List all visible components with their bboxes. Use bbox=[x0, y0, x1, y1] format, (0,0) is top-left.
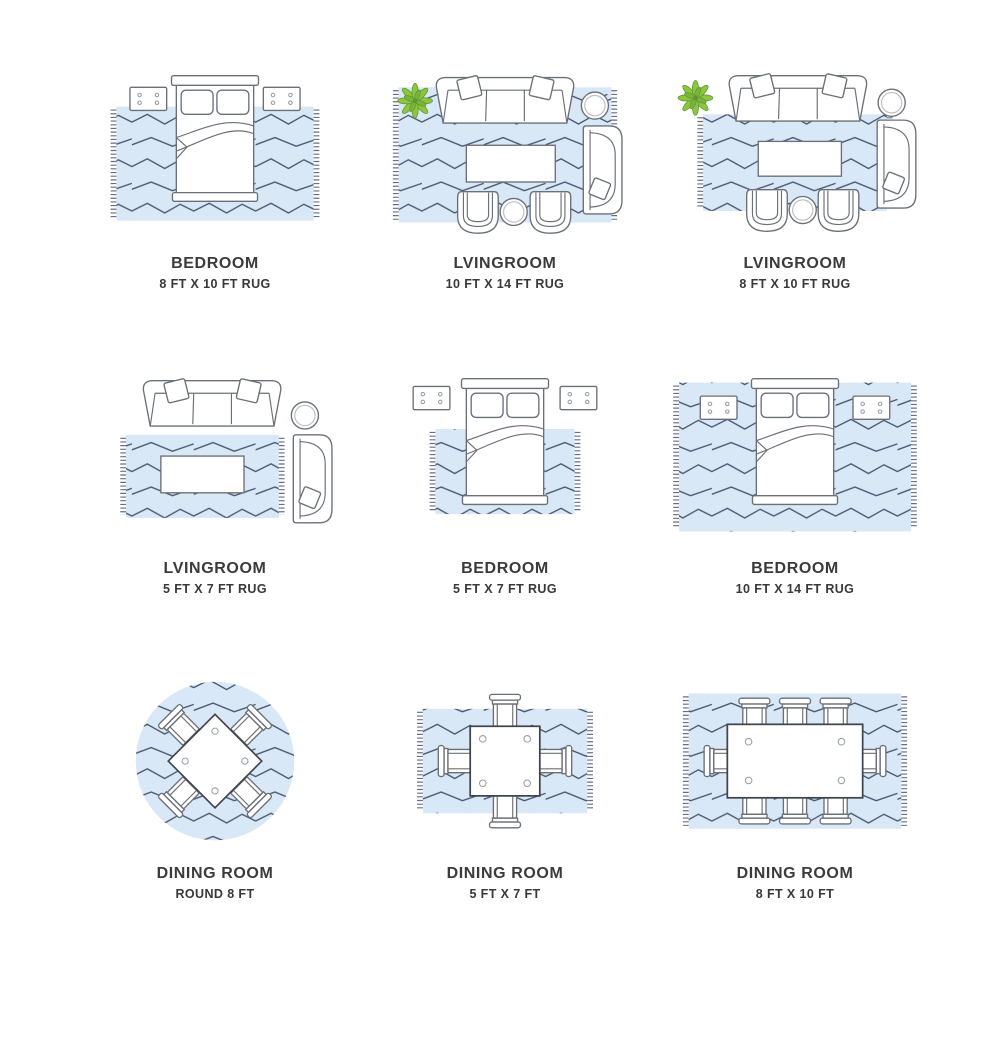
dining-chair-icon bbox=[540, 746, 572, 777]
room-name: LVINGROOM bbox=[163, 559, 267, 579]
armchair-icon bbox=[747, 190, 788, 232]
armchair-icon bbox=[458, 192, 499, 234]
rug-caption: BEDROOM 10 FT X 14 FT RUG bbox=[736, 559, 855, 597]
rug-caption: BEDROOM 5 FT X 7 FT RUG bbox=[453, 559, 557, 597]
nightstand-icon bbox=[853, 396, 890, 419]
scene-dining-5x7 bbox=[360, 652, 650, 856]
rug-size: 8 FT X 10 FT RUG bbox=[159, 276, 270, 292]
coffee-table-icon bbox=[466, 145, 555, 182]
round-table-icon bbox=[789, 197, 816, 224]
side-table-icon bbox=[878, 89, 905, 116]
rug-guide-cell-livingroom-8x10: LVINGROOM 8 FT X 10 FT RUG bbox=[650, 42, 940, 347]
dining-table-icon bbox=[727, 724, 862, 797]
rug-caption: DINING ROOM 8 FT X 10 FT bbox=[737, 864, 854, 902]
rug-size-guide-grid: BEDROOM 8 FT X 10 FT RUG LVINGROOM bbox=[70, 42, 1000, 957]
plant-icon bbox=[398, 83, 433, 118]
scene-bedroom-5x7 bbox=[360, 347, 650, 551]
rug-guide-cell-livingroom-10x14: LVINGROOM 10 FT X 14 FT RUG bbox=[360, 42, 650, 347]
rug-caption: DINING ROOM 5 FT X 7 FT bbox=[447, 864, 564, 902]
armchair-icon bbox=[818, 190, 859, 232]
rug-size: 10 FT X 14 FT RUG bbox=[446, 276, 565, 292]
rug-size: 10 FT X 14 FT RUG bbox=[736, 581, 855, 597]
scene-bedroom-10x14 bbox=[650, 347, 940, 551]
dining-table-icon bbox=[470, 726, 540, 796]
nightstand-icon bbox=[263, 87, 300, 110]
rug-guide-cell-dining-8x10: DINING ROOM 8 FT X 10 FT bbox=[650, 652, 940, 957]
rug-guide-cell-bedroom-8x10: BEDROOM 8 FT X 10 FT RUG bbox=[70, 42, 360, 347]
nightstand-icon bbox=[130, 87, 167, 110]
chaise-icon bbox=[877, 120, 916, 208]
bed-icon bbox=[172, 76, 259, 202]
dining-chair-icon bbox=[490, 694, 521, 726]
dining-chair-icon bbox=[438, 746, 470, 777]
rug-size: 8 FT X 10 FT bbox=[737, 886, 854, 902]
side-table-icon bbox=[581, 92, 608, 119]
plant-icon bbox=[678, 81, 713, 116]
room-name: DINING ROOM bbox=[737, 864, 854, 884]
scene-livingroom-8x10 bbox=[650, 42, 940, 246]
bed-icon bbox=[462, 379, 549, 505]
rug-guide-cell-livingroom-5x7: LVINGROOM 5 FT X 7 FT RUG bbox=[70, 347, 360, 652]
chaise-icon bbox=[293, 435, 332, 523]
nightstand-icon bbox=[700, 396, 737, 419]
rug-caption: LVINGROOM 8 FT X 10 FT RUG bbox=[739, 254, 850, 292]
sofa-icon bbox=[729, 73, 866, 121]
rug-caption: DINING ROOM ROUND 8 FT bbox=[157, 864, 274, 902]
scene-dining-8x10 bbox=[650, 652, 940, 856]
rug-guide-cell-bedroom-10x14: BEDROOM 10 FT X 14 FT RUG bbox=[650, 347, 940, 652]
rug-caption: LVINGROOM 10 FT X 14 FT RUG bbox=[446, 254, 565, 292]
sofa-icon bbox=[436, 75, 573, 123]
room-name: LVINGROOM bbox=[446, 254, 565, 274]
rug-caption: LVINGROOM 5 FT X 7 FT RUG bbox=[163, 559, 267, 597]
room-name: BEDROOM bbox=[159, 254, 270, 274]
scene-livingroom-5x7 bbox=[70, 347, 360, 551]
room-name: DINING ROOM bbox=[157, 864, 274, 884]
room-name: BEDROOM bbox=[736, 559, 855, 579]
bed-icon bbox=[752, 379, 839, 505]
rug-guide-cell-dining-5x7: DINING ROOM 5 FT X 7 FT bbox=[360, 652, 650, 957]
chaise-icon bbox=[583, 126, 622, 214]
rug-caption: BEDROOM 8 FT X 10 FT RUG bbox=[159, 254, 270, 292]
room-name: DINING ROOM bbox=[447, 864, 564, 884]
rug-size: ROUND 8 FT bbox=[157, 886, 274, 902]
side-table-icon bbox=[291, 402, 318, 429]
rug-size: 5 FT X 7 FT RUG bbox=[163, 581, 267, 597]
coffee-table-icon bbox=[758, 141, 841, 176]
rug-size: 8 FT X 10 FT RUG bbox=[739, 276, 850, 292]
scene-bedroom-8x10 bbox=[70, 42, 360, 246]
room-name: BEDROOM bbox=[453, 559, 557, 579]
scene-dining-round-8 bbox=[70, 652, 360, 856]
nightstand-icon bbox=[560, 386, 597, 409]
rug-size: 5 FT X 7 FT bbox=[447, 886, 564, 902]
rug-guide-cell-dining-round-8: DINING ROOM ROUND 8 FT bbox=[70, 652, 360, 957]
armchair-icon bbox=[530, 192, 571, 234]
coffee-table-icon bbox=[161, 456, 244, 493]
nightstand-icon bbox=[413, 386, 450, 409]
dining-chair-icon bbox=[490, 796, 521, 828]
sofa-icon bbox=[143, 378, 280, 426]
room-name: LVINGROOM bbox=[739, 254, 850, 274]
rug-size: 5 FT X 7 FT RUG bbox=[453, 581, 557, 597]
scene-livingroom-10x14 bbox=[360, 42, 650, 246]
rug-guide-cell-bedroom-5x7: BEDROOM 5 FT X 7 FT RUG bbox=[360, 347, 650, 652]
round-table-icon bbox=[500, 198, 527, 225]
